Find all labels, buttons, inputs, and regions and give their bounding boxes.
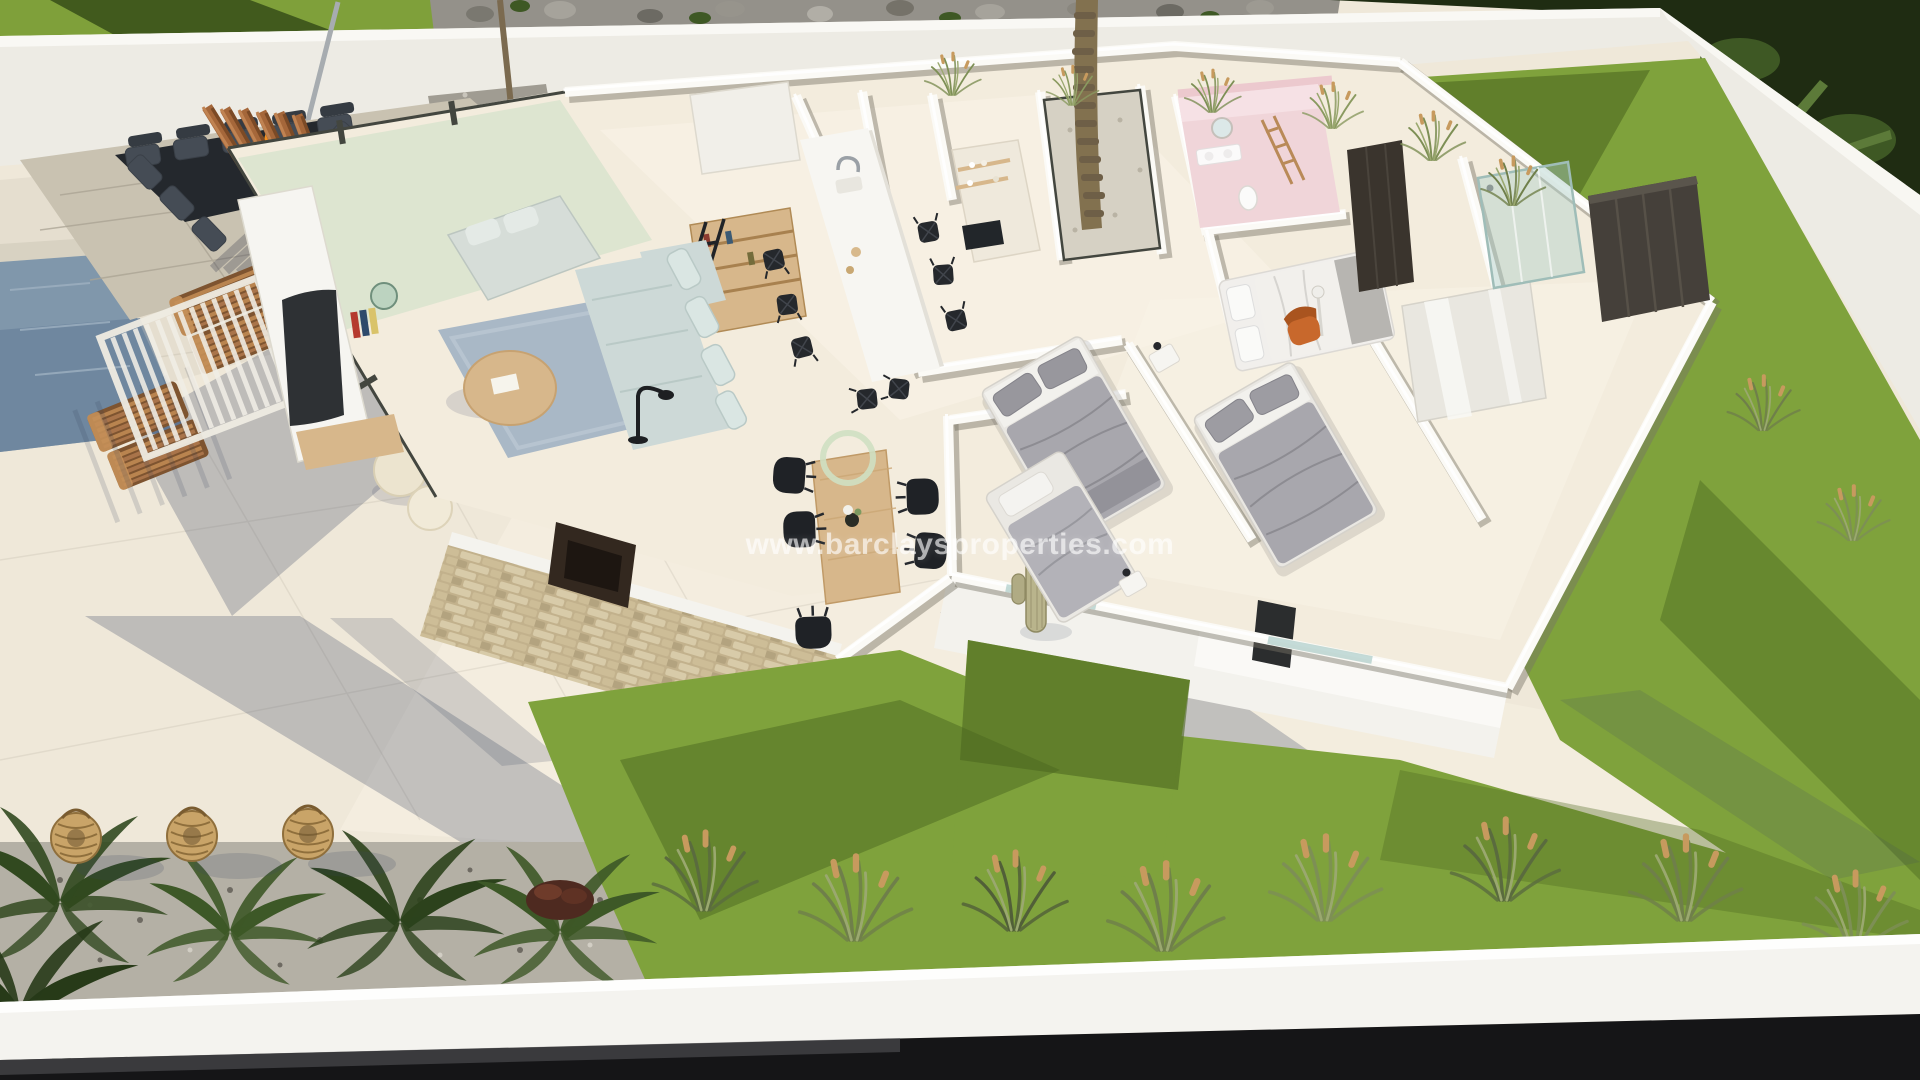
side-table — [371, 283, 397, 309]
books — [350, 308, 379, 339]
shower-enclosure — [1478, 162, 1584, 288]
render-canvas — [0, 0, 1920, 1080]
pink-bathroom — [1178, 84, 1340, 228]
tv-screen — [282, 290, 344, 426]
villa-render: www.barclaysproperties.com — [0, 0, 1920, 1080]
red-plant — [526, 880, 594, 920]
tall-cabinet — [690, 82, 800, 174]
wardrobe-mirror — [1402, 282, 1546, 422]
wardrobe-dark-b — [1588, 176, 1710, 322]
mirror — [1212, 118, 1232, 138]
